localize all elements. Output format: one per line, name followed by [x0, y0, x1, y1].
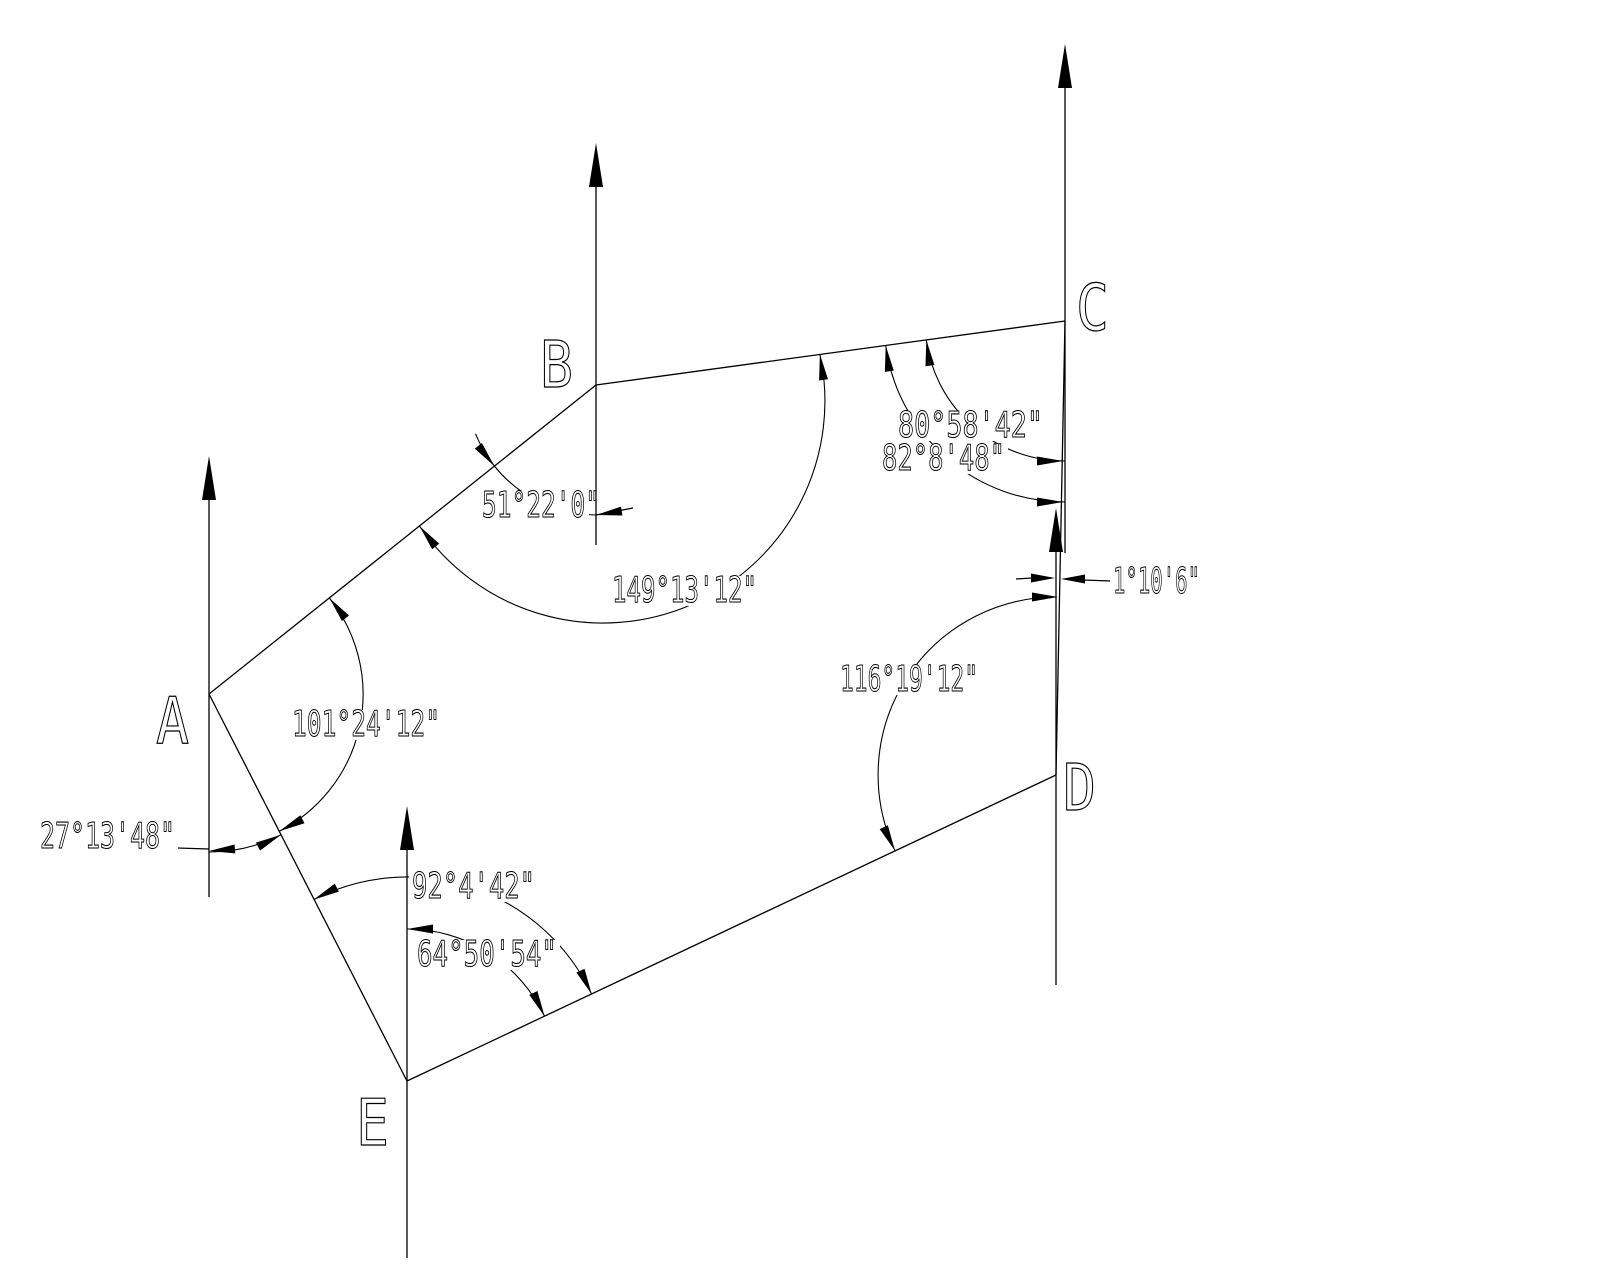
- vertex-label-d: D: [1063, 752, 1096, 826]
- angle-label-101-24-12: 101°24'12": [292, 704, 440, 745]
- drawing-background: [0, 0, 1600, 1280]
- vertex-label-a: A: [156, 685, 189, 759]
- angle-label-82-8-48: 82°8'48": [882, 438, 1005, 479]
- angle-label-27-13-48: 27°13'48": [40, 816, 175, 857]
- vertex-label-c: C: [1076, 272, 1109, 346]
- angle-label-51-22-0: 51°22'0": [482, 485, 600, 526]
- vertex-label-e: E: [356, 1087, 389, 1161]
- angle-label-92-4-42: 92°4'42": [412, 866, 535, 907]
- vertex-label-b: B: [540, 329, 573, 403]
- cad-drawing-canvas: 51°22'0"149°13'12"80°58'42"82°8'48"1°10'…: [0, 0, 1600, 1280]
- cad-drawing-page: 51°22'0"149°13'12"80°58'42"82°8'48"1°10'…: [0, 0, 1600, 1280]
- angle-label-149-13-12: 149°13'12": [612, 570, 757, 611]
- angle-label-64-50-54: 64°50'54": [417, 934, 557, 975]
- angle-label-1-10-6: 1°10'6": [1113, 561, 1200, 602]
- angle-label-116-19-12: 116°19'12": [840, 659, 978, 700]
